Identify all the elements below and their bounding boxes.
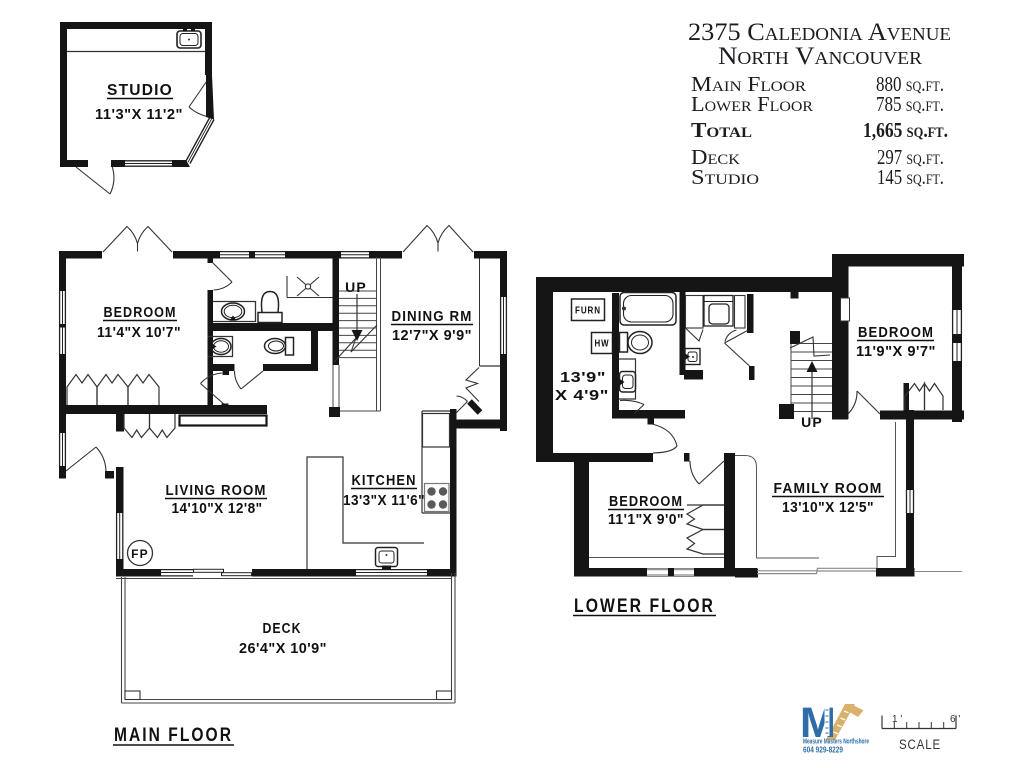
svg-text:785 sq.ft.: 785 sq.ft. (876, 92, 944, 116)
svg-text:X 4'9": X 4'9" (555, 387, 609, 404)
svg-text:BEDROOM: BEDROOM (858, 325, 934, 341)
svg-text:FP: FP (131, 547, 149, 561)
svg-text:MAIN FLOOR: MAIN FLOOR (114, 725, 233, 746)
svg-text:13'3"X 11'6": 13'3"X 11'6" (343, 492, 425, 509)
svg-text:11'9"X 9'7": 11'9"X 9'7" (856, 343, 936, 360)
svg-text:Lower Floor: Lower Floor (691, 92, 813, 116)
svg-text:11'3"X 11'2": 11'3"X 11'2" (95, 106, 183, 123)
svg-text:DINING RM: DINING RM (392, 309, 473, 325)
svg-text:Measure Masters Northshore: Measure Masters Northshore (803, 739, 869, 746)
svg-text:North Vancouver: North Vancouver (718, 43, 922, 70)
svg-text:14'10"X 12'8": 14'10"X 12'8" (172, 500, 263, 517)
svg-text:LIVING ROOM: LIVING ROOM (166, 483, 267, 499)
svg-text:FURN: FURN (575, 305, 601, 317)
svg-text:13'10"X 12'5": 13'10"X 12'5" (782, 499, 874, 516)
svg-text:SCALE: SCALE (899, 737, 941, 752)
svg-text:1,665 sq.ft.: 1,665 sq.ft. (863, 118, 948, 142)
svg-text:12'7"X 9'9": 12'7"X 9'9" (392, 327, 472, 344)
svg-text:BEDROOM: BEDROOM (104, 305, 177, 321)
svg-text:11'4"X 10'7": 11'4"X 10'7" (97, 324, 181, 341)
svg-text:UP: UP (801, 414, 823, 430)
svg-text:BEDROOM: BEDROOM (609, 494, 683, 510)
svg-text:HW: HW (595, 338, 610, 350)
svg-text:13'9": 13'9" (560, 369, 606, 386)
svg-text:Total: Total (691, 118, 752, 142)
svg-text:UP: UP (345, 279, 367, 295)
svg-text:DECK: DECK (263, 621, 302, 637)
svg-text:1 ': 1 ' (892, 714, 902, 725)
svg-text:604 929-8229: 604 929-8229 (803, 746, 843, 755)
svg-text:LOWER FLOOR: LOWER FLOOR (574, 596, 715, 617)
svg-text:KITCHEN: KITCHEN (352, 473, 417, 489)
svg-text:STUDIO: STUDIO (107, 82, 173, 99)
svg-text:11'1"X 9'0": 11'1"X 9'0" (608, 511, 684, 528)
svg-text:26'4"X 10'9": 26'4"X 10'9" (239, 640, 327, 657)
svg-text:FAMILY ROOM: FAMILY ROOM (774, 481, 883, 497)
svg-text:145 sq.ft.: 145 sq.ft. (877, 165, 944, 189)
svg-text:6 ': 6 ' (950, 714, 960, 725)
svg-text:2375 Caledonia Avenue: 2375 Caledonia Avenue (688, 19, 951, 46)
svg-text:Studio: Studio (691, 165, 759, 189)
